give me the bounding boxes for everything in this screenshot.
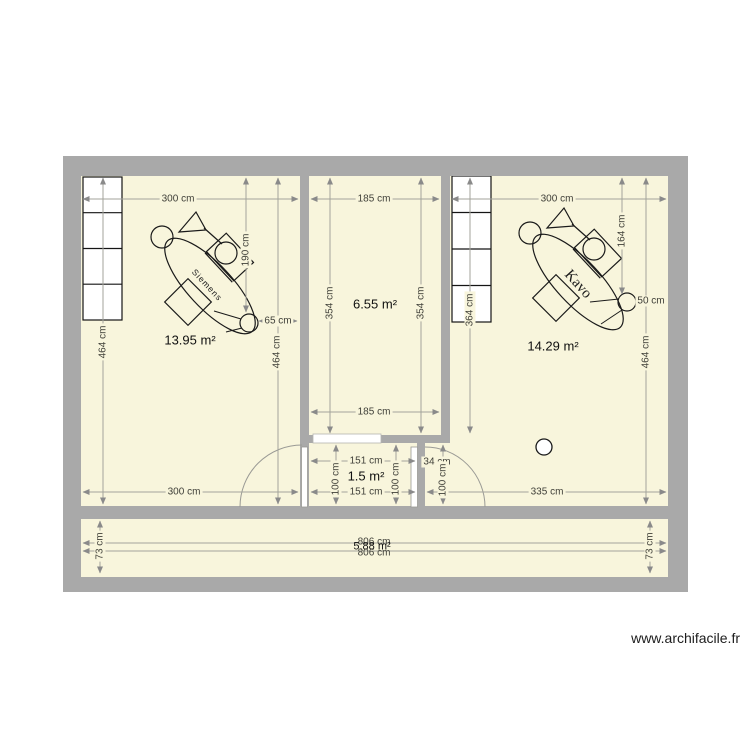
dim-niche-height: 100 cm: [438, 462, 449, 499]
wall-middle-right: [441, 176, 450, 443]
dim-left-room-right: 464 cm: [272, 334, 283, 371]
dim-middle-room-bottom: 185 cm: [356, 407, 393, 418]
room-label-middle: 6.55 m²: [350, 298, 400, 313]
room-label-right: 14.29 m²: [524, 340, 581, 355]
dim-wc-top: 151 cm: [348, 456, 385, 467]
room-label-left: 13.95 m²: [161, 334, 218, 349]
dim-left-room-top: 300 cm: [160, 194, 197, 205]
room-label-wc: 1.5 m²: [345, 470, 388, 485]
dim-middle-room-left: 354 cm: [325, 285, 336, 322]
dim-right-foot: 50 cm: [635, 296, 666, 307]
dim-left-chair: 190 cm: [241, 232, 252, 269]
dim-middle-room-right: 354 cm: [416, 285, 427, 322]
dim-left-room-left: 464 cm: [98, 324, 109, 361]
dim-right-cabinet: 364 cm: [465, 292, 476, 329]
floor-plan-canvas: Siemens Kavo 300: [0, 0, 750, 750]
wall-wc-right: [417, 435, 425, 506]
dim-middle-room-top: 185 cm: [356, 194, 393, 205]
stool: [536, 439, 552, 455]
dim-right-room-top: 300 cm: [539, 194, 576, 205]
dim-right-room-right: 464 cm: [641, 334, 652, 371]
dim-wc-left: 100 cm: [331, 461, 342, 498]
dim-wc-right: 100 cm: [391, 461, 402, 498]
dim-right-room-bottom: 335 cm: [529, 487, 566, 498]
dim-corridor-left: 73 cm: [95, 530, 106, 561]
dim-right-chair: 164 cm: [617, 213, 628, 250]
dim-corridor-right: 73 cm: [645, 530, 656, 561]
dim-left-foot: 65 cm: [262, 316, 293, 327]
wall-top: [63, 156, 688, 176]
watermark: www.archifacile.fr: [631, 630, 740, 646]
wall-left: [63, 156, 81, 592]
wall-corridor-divider: [81, 506, 668, 519]
room-label-corridor: 5.88 m²: [353, 541, 390, 554]
wall-bottom: [63, 577, 688, 592]
dim-wc-bottom: 151 cm: [348, 487, 385, 498]
dim-left-room-bottom: 300 cm: [166, 487, 203, 498]
door-leaf-left: [302, 447, 308, 507]
wall-right: [668, 156, 688, 592]
opening-middle-room: [313, 434, 381, 443]
door-leaf-right: [411, 447, 418, 507]
